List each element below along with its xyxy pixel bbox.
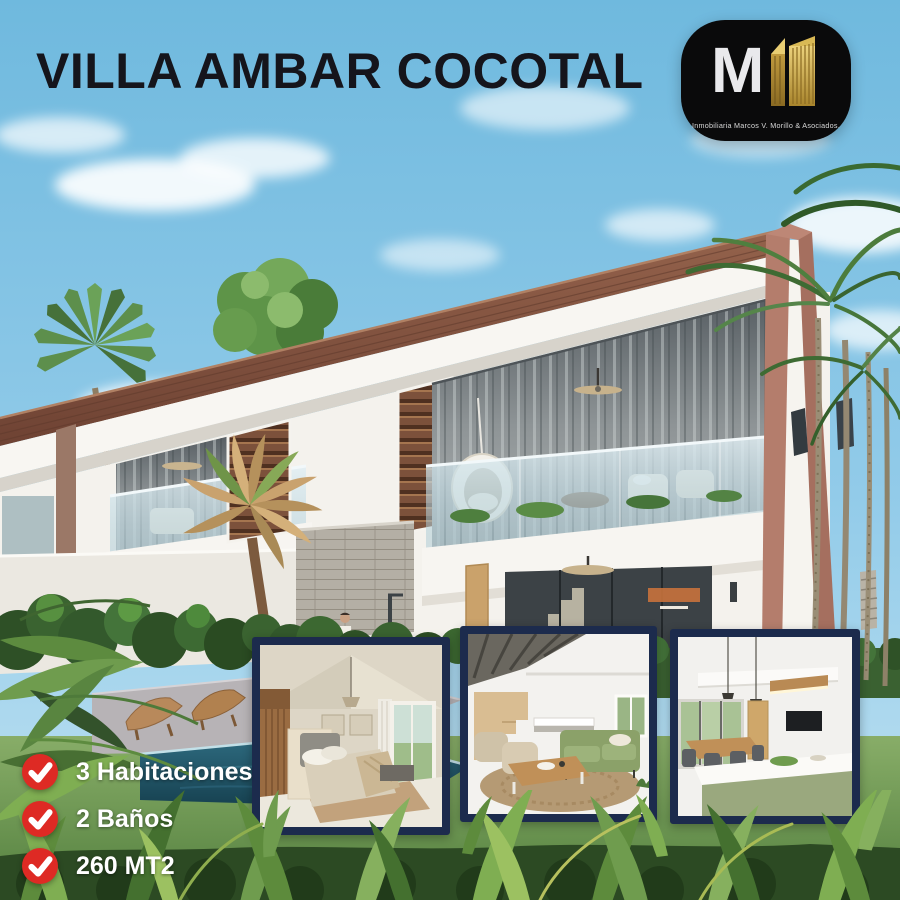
gallery-photo-living-room <box>460 626 657 822</box>
feature-label: 2 Baños <box>76 805 173 834</box>
gallery-photo-kitchen <box>670 629 860 824</box>
gallery-photo-bedroom <box>252 637 450 835</box>
brand-logo: M Inmobiliaria Marcos V. Morillo & Asoci… <box>681 20 851 141</box>
logo-monogram: M <box>711 38 762 102</box>
real-estate-flyer: VILLA AMBAR COCOTAL M Inmobiliaria Marco… <box>0 0 900 900</box>
feature-item: 260 MT2 <box>22 848 252 884</box>
interior-artwork <box>648 588 700 602</box>
bedroom-photo <box>260 645 442 827</box>
logo-caption: Inmobiliaria Marcos V. Morillo & Asociad… <box>689 121 843 130</box>
feature-item: 2 Baños <box>22 801 252 837</box>
feature-list: 3 Habitaciones 2 Baños 260 MT2 <box>22 754 252 895</box>
feature-label: 3 Habitaciones <box>76 758 252 787</box>
logo-building-icon <box>765 34 827 112</box>
tv-screen <box>786 711 822 731</box>
entry-door <box>466 564 488 634</box>
feature-label: 260 MT2 <box>76 852 175 881</box>
check-icon <box>22 754 58 790</box>
check-icon <box>22 848 58 884</box>
wall-sconce <box>730 582 737 602</box>
living-room-photo <box>468 634 649 814</box>
kitchen-photo <box>678 637 852 816</box>
check-icon <box>22 801 58 837</box>
ceiling-fan <box>562 565 614 575</box>
poster-title: VILLA AMBAR COCOTAL <box>36 42 644 100</box>
feature-item: 3 Habitaciones <box>22 754 252 790</box>
